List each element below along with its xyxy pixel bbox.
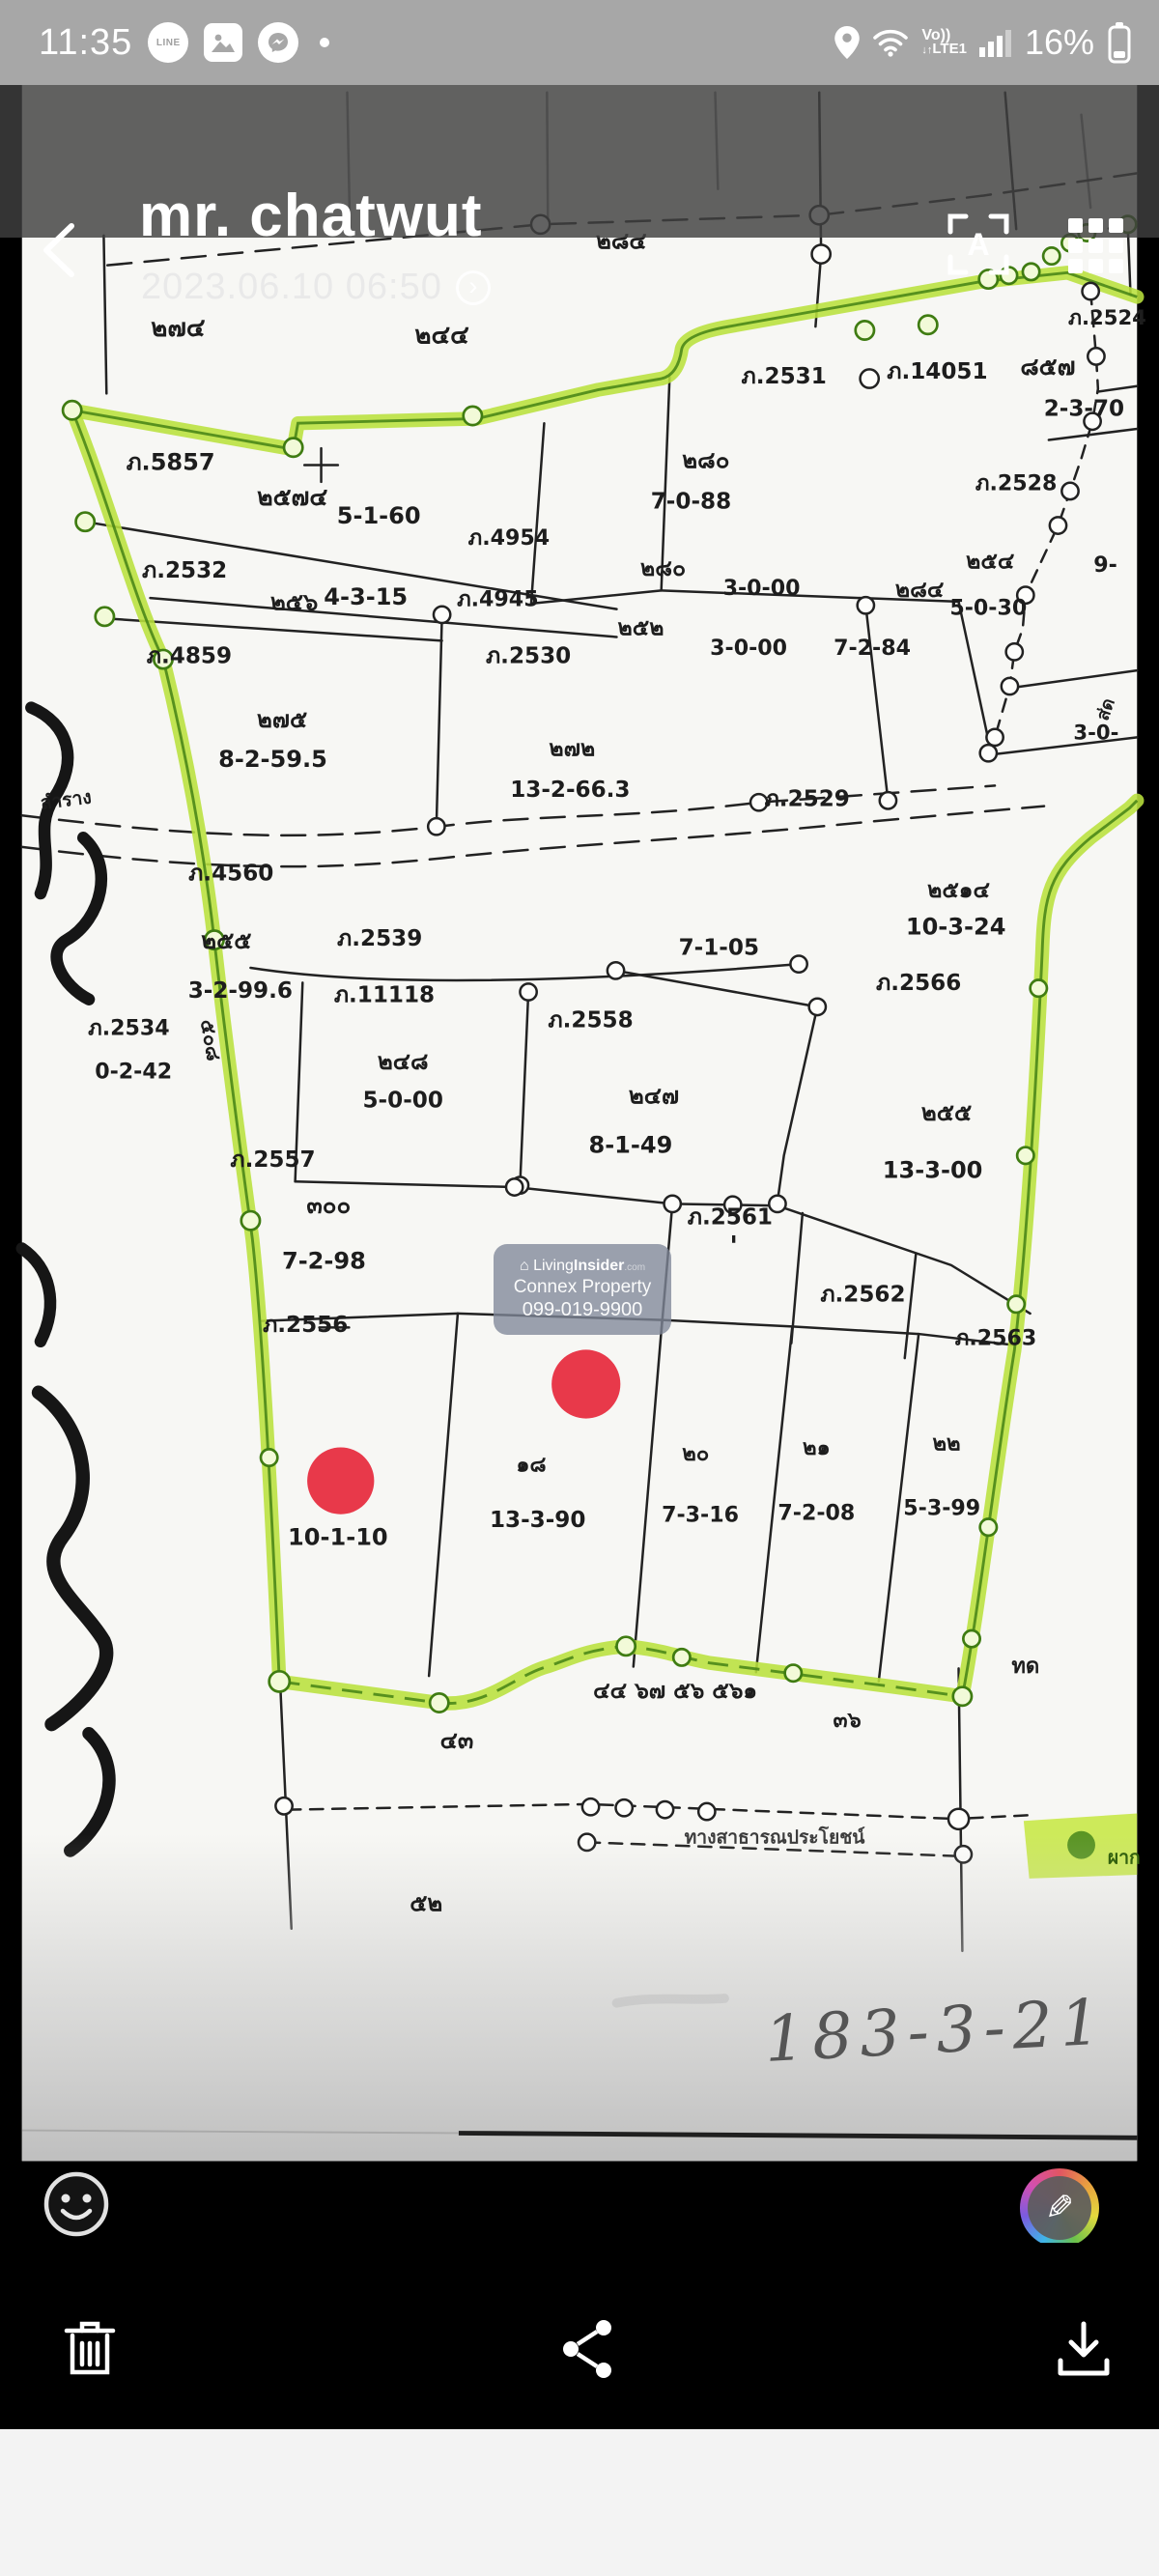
map-label: 7-2-08 xyxy=(777,1500,855,1525)
map-label: ภ.2532 xyxy=(142,558,227,583)
network-type-label: Vo)) ↓↑LTE1 xyxy=(921,28,967,56)
map-label: ๒๗๔ xyxy=(151,314,206,343)
expand-date-button[interactable]: › xyxy=(456,270,491,305)
ocr-text-scan-button[interactable]: A xyxy=(947,212,1010,276)
map-label: ภ.2529 xyxy=(765,787,850,812)
map-label: 9- xyxy=(1093,552,1117,578)
share-button[interactable] xyxy=(557,2318,619,2380)
map-label: ภ.2556 xyxy=(263,1313,348,1338)
phone-screen: { "status_bar": { "time": "11:35", "line… xyxy=(0,0,1159,2576)
map-label: ๔๓ xyxy=(440,1727,474,1754)
map-label: 7-1-05 xyxy=(679,936,759,961)
map-label: 8-2-59.5 xyxy=(218,746,327,773)
map-label: ๒๕๑๔ xyxy=(927,878,990,903)
map-label: ๓๐๐ xyxy=(306,1192,351,1219)
map-label: 10-3-24 xyxy=(906,913,1006,940)
grid-icon xyxy=(1068,218,1083,233)
map-label: ภ.14051 xyxy=(887,359,987,384)
map-label: ภ.2558 xyxy=(548,1008,633,1033)
map-label: ผาก xyxy=(1108,1846,1141,1868)
map-label: ๒๗๕ xyxy=(257,706,307,733)
smiley-icon xyxy=(46,2174,106,2234)
red-dot-marker xyxy=(551,1349,620,1418)
messenger-notification-icon xyxy=(258,22,298,63)
map-label: ภ.2539 xyxy=(337,926,422,951)
map-label: 13-3-00 xyxy=(883,1156,983,1183)
map-label: ภ.2528 xyxy=(975,470,1058,495)
map-label: ภ.4945 xyxy=(457,587,539,612)
delete-button[interactable] xyxy=(59,2318,121,2380)
map-label: 4-3-15 xyxy=(324,583,408,610)
map-label: 3-0-00 xyxy=(723,576,801,601)
map-label: ๒๘๐ xyxy=(640,556,686,581)
edit-photo-button[interactable]: ✎ xyxy=(1020,2168,1099,2248)
map-label: ภ.2531 xyxy=(742,364,827,389)
status-right: Vo)) ↓↑LTE1 16% xyxy=(834,21,1159,64)
share-icon xyxy=(563,2320,611,2378)
battery-icon xyxy=(1107,21,1132,64)
map-label: 3-0-00 xyxy=(710,636,787,661)
battery-percent-label: 16% xyxy=(1025,22,1094,63)
map-label: ๑๘ xyxy=(516,1452,546,1477)
wifi-icon xyxy=(872,28,909,57)
map-label: ภ.5857 xyxy=(127,448,215,475)
map-label: ๒๕๖ xyxy=(270,589,318,616)
android-nav-bar xyxy=(0,2429,1159,2576)
map-label: ภ.4954 xyxy=(468,525,551,551)
map-label: ๓๖ xyxy=(834,1708,862,1733)
map-label: ทด xyxy=(1011,1654,1039,1679)
map-label: ภ.2557 xyxy=(230,1147,315,1173)
status-left: 11:35 LINE xyxy=(0,22,329,64)
map-label: 8-1-49 xyxy=(588,1131,672,1158)
map-label: ภ.2524 xyxy=(1068,305,1146,329)
photo-viewer-header: mr. chatwut 2023.06.10 06:50 › A xyxy=(0,85,1159,238)
trash-icon xyxy=(67,2324,113,2372)
map-label: 5-1-60 xyxy=(337,502,421,529)
map-label: ๒๔๔ xyxy=(414,321,469,350)
map-label: ภ.4859 xyxy=(147,643,232,668)
map-label: ๒๔๗ xyxy=(629,1082,679,1109)
sender-name-title: mr. chatwut xyxy=(139,182,483,250)
clock: 11:35 xyxy=(39,22,132,64)
status-bar: 11:35 LINE Vo)) ↓↑LTE1 xyxy=(0,0,1159,85)
map-label: 7-3-16 xyxy=(662,1502,739,1527)
watermark-brand: ⌂ LivingInsider.com xyxy=(494,1257,671,1276)
map-label: ๒๗๒ xyxy=(549,737,595,762)
map-label: ภ.2534 xyxy=(88,1015,170,1040)
map-label: ภ.2530 xyxy=(486,643,571,668)
map-label: ภ.4560 xyxy=(188,862,273,887)
download-button[interactable] xyxy=(1053,2318,1115,2380)
map-label: 13-3-90 xyxy=(490,1508,585,1533)
map-label: ๒๕๕ xyxy=(921,1099,972,1126)
map-label: 5-0-00 xyxy=(363,1088,443,1113)
map-label: 3-0- xyxy=(1073,720,1118,744)
chevron-right-icon: › xyxy=(468,273,477,299)
map-label: 7-0-88 xyxy=(651,490,731,515)
map-label: ๘๕๗ xyxy=(1020,353,1075,381)
map-label: ๒๒ xyxy=(932,1430,960,1456)
watermark-phone: 099-019-9900 xyxy=(494,1298,671,1322)
map-label: ทางสาธารณประโยชน์ xyxy=(685,1826,866,1848)
map-label: ๔๔ ๖๗ ๕๖ ๕๖๑ xyxy=(593,1679,757,1704)
back-button[interactable] xyxy=(37,220,81,280)
map-label: 5-0-30 xyxy=(949,595,1027,620)
notification-dot-icon xyxy=(320,38,329,47)
pencil-icon: ✎ xyxy=(1028,2176,1091,2240)
map-label: 7-2-98 xyxy=(282,1248,366,1275)
map-label: ภ.2563 xyxy=(955,1326,1037,1351)
chevron-left-icon xyxy=(46,226,71,274)
map-label: ' xyxy=(729,1230,738,1262)
map-photo[interactable]: ๒๗๔๒๔๔๒๘๔ภ.2531ภ.14051๘๕๗ภ.25242-3-70ภ.5… xyxy=(0,85,1159,2243)
download-icon xyxy=(1060,2324,1107,2373)
photo-datetime-row: 2023.06.10 06:50 › xyxy=(141,267,491,308)
map-label: 7-2-84 xyxy=(834,636,911,661)
photo-grid-button[interactable] xyxy=(1068,218,1124,274)
map-label: 10-1-10 xyxy=(288,1523,388,1550)
watermark-company: Connex Property xyxy=(494,1276,671,1299)
map-label: 3-2-99.6 xyxy=(188,978,293,1004)
map-label: ภ.11118 xyxy=(334,983,435,1008)
red-dot-marker xyxy=(307,1447,374,1514)
location-icon xyxy=(834,26,860,59)
map-label: ๒๔๘ xyxy=(378,1048,429,1075)
svg-text:A: A xyxy=(967,227,989,262)
line-notification-icon: LINE xyxy=(148,22,188,63)
map-label: 2-3-70 xyxy=(1044,397,1124,422)
sticker-emoji-button[interactable] xyxy=(42,2169,111,2239)
house-icon: ⌂ xyxy=(520,1258,529,1274)
signal-strength-icon xyxy=(979,28,1012,57)
map-label: ๒๘๔ xyxy=(895,578,944,603)
gallery-notification-icon xyxy=(204,23,242,62)
map-label: ๒๑ xyxy=(803,1435,831,1460)
map-label: ๒๕๗๔ xyxy=(257,483,327,511)
map-label: ๒๘๐ xyxy=(682,446,729,473)
map-label: ภ.2566 xyxy=(876,971,961,996)
map-label: ๒๐ xyxy=(682,1441,709,1466)
map-label: 5-3-99 xyxy=(903,1496,980,1521)
map-label: ๕๒ xyxy=(410,1890,442,1917)
map-label: 0-2-42 xyxy=(95,1059,172,1084)
livinginsider-watermark: ⌂ LivingInsider.com Connex Property 099-… xyxy=(494,1244,671,1335)
map-label: 13-2-66.3 xyxy=(510,778,630,803)
map-label: ๒๕๕ xyxy=(201,927,251,954)
map-label: ภ.2561 xyxy=(688,1205,773,1231)
photo-datetime: 2023.06.10 06:50 xyxy=(141,267,442,308)
map-label: ภ.2562 xyxy=(820,1282,905,1307)
map-label: ๒๕๒ xyxy=(618,616,664,641)
map-label: ๒๕๔ xyxy=(966,549,1014,574)
